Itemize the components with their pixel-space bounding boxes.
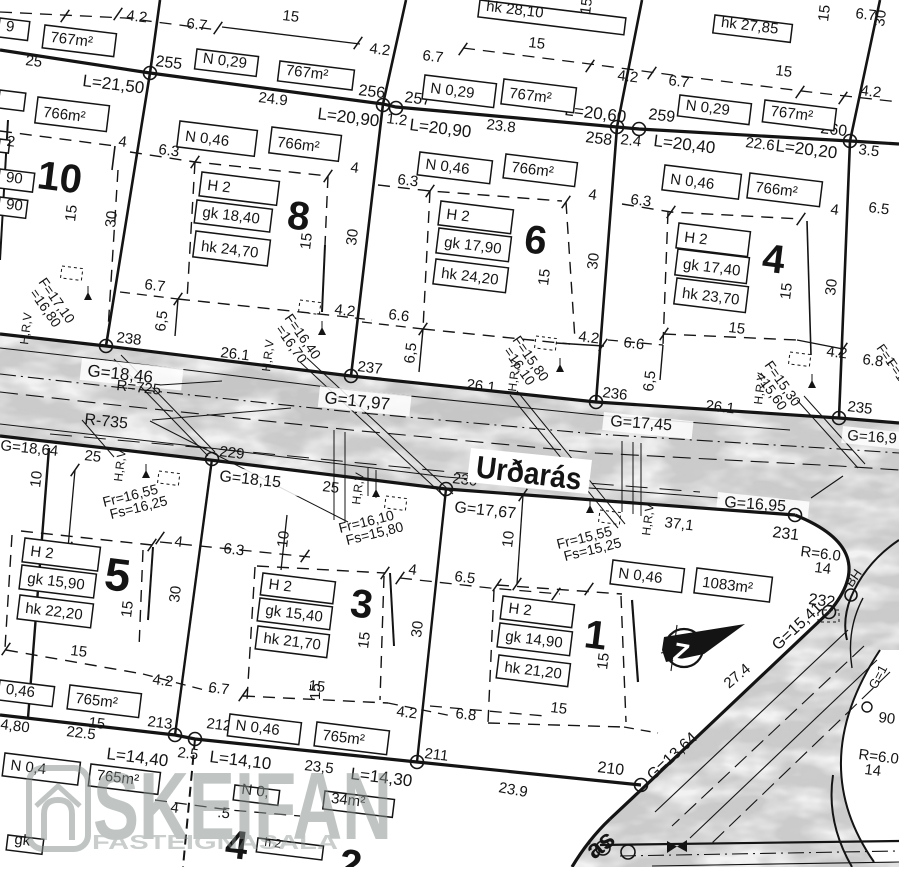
svg-text:15: 15	[528, 34, 547, 53]
svg-text:15: 15	[550, 699, 569, 718]
svg-text:H 2: H 2	[206, 177, 231, 197]
svg-text:229: 229	[219, 443, 246, 463]
svg-text:211: 211	[424, 745, 450, 765]
svg-text:6.5: 6.5	[868, 199, 891, 218]
svg-text:6,5: 6,5	[401, 342, 420, 365]
svg-text:30: 30	[408, 620, 427, 639]
svg-text:90: 90	[5, 169, 24, 188]
svg-text:26.1: 26.1	[466, 376, 497, 396]
svg-text:23.8: 23.8	[486, 116, 517, 136]
svg-text:6.3: 6.3	[223, 540, 246, 559]
svg-text:15: 15	[594, 652, 613, 671]
svg-text:6.5: 6.5	[454, 568, 477, 587]
svg-text:235: 235	[847, 398, 874, 418]
svg-text:15: 15	[118, 600, 137, 619]
svg-text:G=16,9: G=16,9	[847, 427, 898, 447]
svg-text:15: 15	[88, 714, 107, 733]
svg-text:H 2: H 2	[268, 576, 293, 596]
svg-text:25: 25	[25, 52, 44, 71]
svg-text:237: 237	[357, 358, 384, 378]
svg-text:14: 14	[814, 559, 833, 578]
svg-text:1.2: 1.2	[386, 110, 409, 129]
svg-text:6.3: 6.3	[158, 141, 181, 160]
svg-text:4,80: 4,80	[0, 716, 31, 736]
svg-text:25: 25	[84, 447, 103, 466]
svg-text:236: 236	[602, 384, 629, 404]
svg-text:30: 30	[871, 9, 890, 28]
svg-text:26.1: 26.1	[220, 344, 251, 364]
svg-text:4.2: 4.2	[860, 82, 883, 101]
svg-text:15: 15	[728, 319, 747, 338]
svg-text:6.3: 6.3	[397, 171, 420, 190]
svg-text:15: 15	[62, 204, 81, 223]
svg-text:26.1: 26.1	[705, 397, 736, 417]
svg-text:255: 255	[155, 53, 184, 73]
svg-text:6.6: 6.6	[623, 334, 646, 353]
svg-text:210: 210	[597, 759, 626, 779]
svg-text:6.7: 6.7	[668, 72, 691, 91]
svg-text:6.7: 6.7	[186, 15, 209, 34]
svg-text:22.6: 22.6	[745, 134, 776, 154]
svg-text:3.5: 3.5	[858, 141, 881, 160]
svg-text:4.2: 4.2	[126, 7, 149, 26]
svg-text:213: 213	[147, 713, 174, 733]
svg-text:4.2: 4.2	[369, 40, 392, 59]
svg-text:4.2: 4.2	[826, 343, 849, 362]
svg-text:25: 25	[322, 478, 341, 497]
svg-text:15: 15	[297, 232, 316, 251]
svg-text:256: 256	[358, 82, 387, 102]
svg-text:24.9: 24.9	[258, 89, 289, 109]
svg-text:30: 30	[166, 585, 185, 604]
svg-text:30: 30	[343, 228, 362, 247]
svg-text:6.6: 6.6	[388, 306, 411, 325]
svg-text:238: 238	[116, 329, 143, 349]
svg-text:6.3: 6.3	[630, 191, 653, 210]
svg-text:90: 90	[878, 709, 897, 728]
svg-text:15: 15	[70, 642, 89, 661]
svg-text:2.4: 2.4	[620, 131, 643, 150]
svg-text:4.2: 4.2	[617, 67, 640, 86]
svg-text:15: 15	[307, 683, 324, 700]
svg-text:6.7: 6.7	[144, 276, 167, 295]
svg-text:231: 231	[772, 524, 801, 544]
svg-text:H 2: H 2	[508, 600, 533, 620]
svg-text:10: 10	[35, 153, 85, 202]
svg-text:6.8: 6.8	[455, 705, 478, 724]
svg-text:258: 258	[585, 129, 614, 149]
svg-text:30: 30	[102, 210, 121, 229]
svg-text:15: 15	[577, 0, 596, 15]
svg-text:37,1: 37,1	[664, 514, 695, 534]
svg-text:H 2: H 2	[683, 229, 708, 249]
svg-text:10: 10	[27, 470, 46, 489]
svg-text:15: 15	[775, 62, 794, 81]
svg-text:15: 15	[282, 7, 301, 26]
svg-text:10: 10	[274, 530, 293, 549]
svg-text:15: 15	[815, 4, 834, 23]
svg-text:30: 30	[822, 278, 841, 297]
svg-text:15: 15	[355, 631, 374, 650]
svg-text:4.2: 4.2	[334, 301, 357, 320]
svg-text:10: 10	[499, 530, 518, 549]
svg-text:H 2: H 2	[29, 543, 54, 563]
svg-text:15: 15	[535, 268, 554, 287]
svg-text:4.2: 4.2	[152, 671, 175, 690]
svg-text:6,5: 6,5	[640, 370, 659, 393]
svg-text:30: 30	[584, 252, 603, 271]
svg-text:15: 15	[777, 282, 796, 301]
svg-text:14: 14	[864, 761, 883, 780]
svg-text:90: 90	[5, 196, 24, 215]
svg-text:H 2: H 2	[445, 206, 470, 226]
svg-text:259: 259	[648, 106, 677, 126]
svg-text:FASTEIGNASALA: FASTEIGNASALA	[92, 832, 338, 854]
svg-text:4.2: 4.2	[578, 328, 601, 347]
svg-text:6.7: 6.7	[208, 679, 231, 698]
svg-text:4.2: 4.2	[396, 703, 419, 722]
svg-text:6,5: 6,5	[152, 310, 171, 333]
svg-text:6.7: 6.7	[422, 47, 445, 66]
svg-text:0,46: 0,46	[5, 681, 36, 701]
